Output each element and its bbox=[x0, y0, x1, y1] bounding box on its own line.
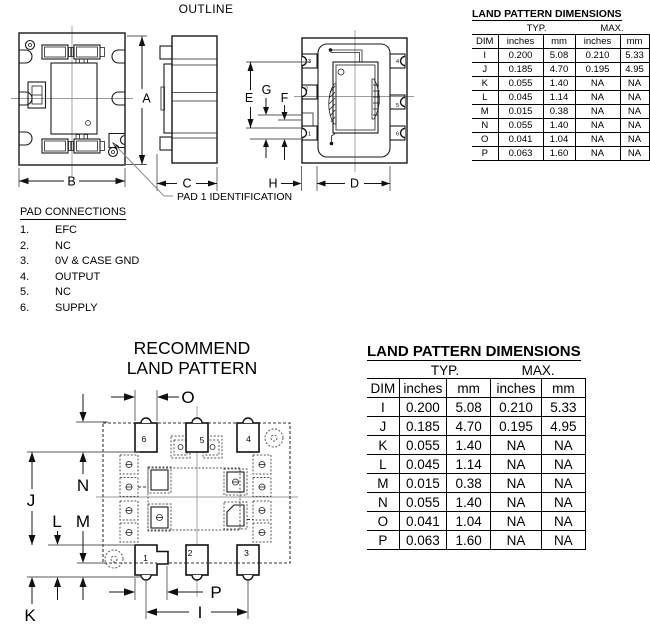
via-column-left bbox=[120, 455, 138, 542]
dim-label-D: D bbox=[350, 177, 359, 191]
table-cell-typ_in: 0.041 bbox=[498, 133, 543, 147]
dim-label-O: O bbox=[181, 388, 194, 407]
table-cell-typ_in: 0.185 bbox=[399, 417, 446, 436]
outline-side-view bbox=[160, 36, 217, 163]
table-cell-max_mm: NA bbox=[541, 436, 585, 455]
col-header: inches bbox=[498, 35, 543, 49]
pad-connection-item: 4. OUTPUT bbox=[20, 270, 139, 286]
table-cell-typ_mm: 1.04 bbox=[447, 512, 491, 531]
table-cell-typ_in: 0.045 bbox=[399, 455, 446, 474]
lp-pad-number-5: 5 bbox=[200, 435, 205, 445]
col-header: mm bbox=[541, 379, 585, 398]
land-pattern-drawing: 6 5 4 1 2 3 O N bbox=[20, 385, 335, 625]
table-cell-max_mm: NA bbox=[620, 77, 649, 91]
table-cell-max_in: 0.210 bbox=[491, 398, 541, 417]
table-cell-dim: N bbox=[472, 119, 498, 133]
pad-connection-num: 6. bbox=[20, 301, 55, 317]
table-title: LAND PATTERN DIMENSIONS bbox=[472, 8, 622, 21]
table-cell-max_mm: NA bbox=[541, 474, 585, 493]
table-cell-max_in: 0.195 bbox=[491, 417, 541, 436]
pad1-identification-label: PAD 1 IDENTIFICATION bbox=[177, 191, 292, 203]
dim-label-H: H bbox=[268, 177, 277, 191]
table-cell-dim: P bbox=[472, 147, 498, 161]
table-cell-max_in: NA bbox=[491, 455, 541, 474]
table-cell-typ_mm: 1.14 bbox=[543, 91, 575, 105]
dim-label-C: C bbox=[182, 177, 191, 191]
dim-C: C bbox=[157, 154, 217, 191]
table-cell-dim: P bbox=[367, 531, 399, 550]
table-header-row: DIM inches mm inches mm bbox=[367, 379, 586, 398]
col-header: mm bbox=[543, 35, 575, 49]
lp-pad-number-2: 2 bbox=[188, 548, 193, 558]
via-column-right bbox=[253, 455, 271, 542]
table-cell-dim: O bbox=[472, 133, 498, 147]
pad-connection-num: 5. bbox=[20, 285, 55, 301]
group-max: MAX. bbox=[491, 363, 586, 379]
pad-number-1: 1 bbox=[308, 132, 311, 138]
table-cell-max_in: NA bbox=[575, 119, 620, 133]
col-header: inches bbox=[575, 35, 620, 49]
datasheet-page: OUTLINE bbox=[0, 0, 650, 625]
col-header: mm bbox=[620, 35, 649, 49]
outline-top-view bbox=[11, 26, 133, 176]
table-cell-typ_mm: 4.70 bbox=[543, 63, 575, 77]
dim-EGF: E G F bbox=[245, 62, 311, 160]
land-pattern-dimensions-table-small: LAND PATTERN DIMENSIONS TYP. MAX. DIM in… bbox=[472, 4, 649, 161]
pad-number-2: 2 bbox=[305, 87, 308, 93]
table-row: J0.1854.700.1954.95 bbox=[472, 63, 649, 77]
col-header: inches bbox=[399, 379, 446, 398]
table-row: P0.0631.60NANA bbox=[367, 531, 586, 550]
table-cell-max_in: NA bbox=[575, 77, 620, 91]
table-row: J0.1854.700.1954.95 bbox=[367, 417, 586, 436]
pad-connection-item: 6. SUPPLY bbox=[20, 301, 139, 317]
table-cell-typ_in: 0.015 bbox=[498, 105, 543, 119]
group-max: MAX. bbox=[575, 22, 649, 35]
pad-connection-label: NC bbox=[55, 285, 71, 301]
table-cell-max_mm: NA bbox=[541, 455, 585, 474]
table-cell-typ_mm: 1.40 bbox=[543, 77, 575, 91]
group-typ: TYP. bbox=[399, 363, 491, 379]
pad-connection-item: 1. EFC bbox=[20, 223, 139, 239]
pad-connection-label: 0V & CASE GND bbox=[55, 254, 139, 270]
pad-connection-label: EFC bbox=[55, 223, 77, 239]
table-cell-max_mm: NA bbox=[541, 512, 585, 531]
table-cell-typ_mm: 0.38 bbox=[543, 105, 575, 119]
pad-number-6: 6 bbox=[396, 132, 399, 138]
table-cell-typ_mm: 1.60 bbox=[447, 531, 491, 550]
table-cell-typ_in: 0.041 bbox=[399, 512, 446, 531]
dim-label-N: N bbox=[77, 476, 89, 495]
table-cell-dim: I bbox=[472, 49, 498, 63]
lp-pad-number-6: 6 bbox=[142, 434, 147, 444]
pad-connection-label: NC bbox=[55, 239, 71, 255]
table-cell-max_mm: NA bbox=[620, 133, 649, 147]
outline-drawing: A B bbox=[0, 20, 470, 215]
table-cell-dim: L bbox=[472, 91, 498, 105]
table-cell-dim: L bbox=[367, 455, 399, 474]
table-cell-dim: K bbox=[472, 77, 498, 91]
dim-O: O bbox=[111, 388, 195, 421]
table-cell-typ_in: 0.063 bbox=[498, 147, 543, 161]
pad-connection-num: 4. bbox=[20, 270, 55, 286]
pad-number-5: 5 bbox=[396, 103, 399, 109]
pad-connection-num: 3. bbox=[20, 254, 55, 270]
dim-label-E: E bbox=[245, 91, 253, 105]
table-row: L0.0451.14NANA bbox=[472, 91, 649, 105]
group-typ: TYP. bbox=[498, 22, 575, 35]
recommend-title-line1: RECOMMEND bbox=[108, 339, 276, 359]
table-cell-typ_mm: 5.08 bbox=[543, 49, 575, 63]
table-row: I0.2005.080.2105.33 bbox=[367, 398, 586, 417]
table-cell-dim: O bbox=[367, 512, 399, 531]
table-cell-max_in: NA bbox=[575, 147, 620, 161]
table-cell-max_mm: NA bbox=[620, 91, 649, 105]
table-cell-typ_in: 0.055 bbox=[399, 436, 446, 455]
table-group-row: TYP. MAX. bbox=[367, 363, 586, 379]
table-cell-typ_in: 0.200 bbox=[399, 398, 446, 417]
dim-J: J bbox=[27, 452, 36, 545]
col-header: DIM bbox=[367, 379, 399, 398]
dim-label-G: G bbox=[262, 83, 272, 97]
table-cell-typ_mm: 1.04 bbox=[543, 133, 575, 147]
table-cell-max_in: NA bbox=[491, 512, 541, 531]
table-cell-typ_mm: 1.40 bbox=[543, 119, 575, 133]
pad-connection-item: 5. NC bbox=[20, 285, 139, 301]
table-group-row: TYP. MAX. bbox=[472, 22, 649, 35]
pad-connection-num: 2. bbox=[20, 239, 55, 255]
table-cell-max_in: NA bbox=[575, 105, 620, 119]
col-header: inches bbox=[491, 379, 541, 398]
col-header: mm bbox=[447, 379, 491, 398]
dim-label-F: F bbox=[281, 91, 289, 105]
table-cell-dim: M bbox=[367, 474, 399, 493]
table-cell-typ_mm: 0.38 bbox=[447, 474, 491, 493]
lp-pad-number-1: 1 bbox=[143, 553, 148, 563]
table-cell-max_mm: NA bbox=[541, 493, 585, 512]
pad-connection-label: SUPPLY bbox=[55, 301, 98, 317]
dim-N: N bbox=[27, 394, 140, 495]
table-cell-typ_in: 0.045 bbox=[498, 91, 543, 105]
table-cell-typ_in: 0.055 bbox=[498, 119, 543, 133]
table-cell-dim: K bbox=[367, 436, 399, 455]
dim-label-M: M bbox=[76, 512, 90, 531]
table-cell-dim: I bbox=[367, 398, 399, 417]
table-cell-dim: J bbox=[367, 417, 399, 436]
table-row: N0.0551.40NANA bbox=[472, 119, 649, 133]
land-pattern-geometry: 6 5 4 1 2 3 bbox=[96, 406, 298, 597]
table-row: M0.0150.38NANA bbox=[472, 105, 649, 119]
lp-pad-number-4: 4 bbox=[246, 434, 251, 444]
col-header: DIM bbox=[472, 35, 498, 49]
pad1-identification-callout: PAD 1 IDENTIFICATION bbox=[112, 142, 292, 203]
table-cell-max_mm: NA bbox=[620, 119, 649, 133]
table-cell-max_in: 0.195 bbox=[575, 63, 620, 77]
dim-label-J: J bbox=[27, 491, 36, 510]
table-cell-max_in: NA bbox=[491, 493, 541, 512]
table-row: O0.0411.04NANA bbox=[472, 133, 649, 147]
table-cell-typ_mm: 5.08 bbox=[447, 398, 491, 417]
dim-label-A: A bbox=[142, 92, 151, 106]
table-row: K0.0551.40NANA bbox=[367, 436, 586, 455]
table-cell-max_mm: 5.33 bbox=[620, 49, 649, 63]
dim-HD: H D bbox=[268, 166, 390, 191]
table-cell-max_in: NA bbox=[491, 474, 541, 493]
pad-connection-num: 1. bbox=[20, 223, 55, 239]
pad-connection-label: OUTPUT bbox=[55, 270, 100, 286]
table-cell-typ_mm: 1.60 bbox=[543, 147, 575, 161]
table-cell-typ_in: 0.055 bbox=[399, 493, 446, 512]
dim-label-P: P bbox=[210, 583, 221, 602]
table-cell-max_in: NA bbox=[491, 531, 541, 550]
table-cell-typ_in: 0.063 bbox=[399, 531, 446, 550]
pad-connections: PAD CONNECTIONS 1. EFC 2. NC 3. 0V & CAS… bbox=[20, 206, 139, 317]
pad-connections-title: PAD CONNECTIONS bbox=[20, 206, 126, 220]
table-cell-max_mm: 4.95 bbox=[541, 417, 585, 436]
table-cell-max_in: NA bbox=[491, 436, 541, 455]
dim-A: A bbox=[117, 36, 151, 165]
table-cell-max_mm: NA bbox=[620, 147, 649, 161]
table-cell-typ_in: 0.200 bbox=[498, 49, 543, 63]
pad-number-4: 4 bbox=[396, 59, 399, 65]
table-cell-max_in: 0.210 bbox=[575, 49, 620, 63]
table-cell-typ_mm: 1.40 bbox=[447, 493, 491, 512]
dim-LMK: L M K bbox=[24, 512, 142, 625]
table-cell-max_in: NA bbox=[575, 133, 620, 147]
table-cell-typ_in: 0.185 bbox=[498, 63, 543, 77]
land-pattern-dimensions-table-large: LAND PATTERN DIMENSIONS TYP. MAX. DIM in… bbox=[367, 343, 586, 550]
table-row: L0.0451.14NANA bbox=[367, 455, 586, 474]
table-cell-typ_in: 0.055 bbox=[498, 77, 543, 91]
table-cell-typ_in: 0.015 bbox=[399, 474, 446, 493]
table-cell-typ_mm: 4.70 bbox=[447, 417, 491, 436]
table-cell-dim: N bbox=[367, 493, 399, 512]
table-title: LAND PATTERN DIMENSIONS bbox=[367, 343, 581, 361]
table-cell-max_mm: 5.33 bbox=[541, 398, 585, 417]
table-cell-max_mm: 4.95 bbox=[620, 63, 649, 77]
table-row: N0.0551.40NANA bbox=[367, 493, 586, 512]
recommend-land-pattern-title: RECOMMEND LAND PATTERN bbox=[108, 339, 276, 378]
table-cell-dim: J bbox=[472, 63, 498, 77]
lp-pad-number-3: 3 bbox=[244, 548, 249, 558]
recommend-title-line2: LAND PATTERN bbox=[108, 359, 276, 379]
dim-label-I: I bbox=[198, 603, 203, 622]
table-cell-max_mm: NA bbox=[620, 105, 649, 119]
table-row: P0.0631.60NANA bbox=[472, 147, 649, 161]
dim-label-L: L bbox=[52, 512, 61, 531]
pad-connection-item: 2. NC bbox=[20, 239, 139, 255]
table-cell-typ_mm: 1.14 bbox=[447, 455, 491, 474]
table-row: O0.0411.04NANA bbox=[367, 512, 586, 531]
pad-connection-item: 3. 0V & CASE GND bbox=[20, 254, 139, 270]
table-header-row: DIM inches mm inches mm bbox=[472, 35, 649, 49]
dim-label-K: K bbox=[24, 606, 36, 625]
table-row: I0.2005.080.2105.33 bbox=[472, 49, 649, 63]
dim-label-B: B bbox=[67, 175, 75, 189]
table-cell-max_mm: NA bbox=[541, 531, 585, 550]
table-row: M0.0150.38NANA bbox=[367, 474, 586, 493]
outline-bottom-view: 3 2 1 4 5 6 bbox=[294, 30, 414, 172]
table-cell-max_in: NA bbox=[575, 91, 620, 105]
table-row: K0.0551.40NANA bbox=[472, 77, 649, 91]
table-cell-dim: M bbox=[472, 105, 498, 119]
outline-title: OUTLINE bbox=[156, 2, 256, 16]
table-cell-typ_mm: 1.40 bbox=[447, 436, 491, 455]
